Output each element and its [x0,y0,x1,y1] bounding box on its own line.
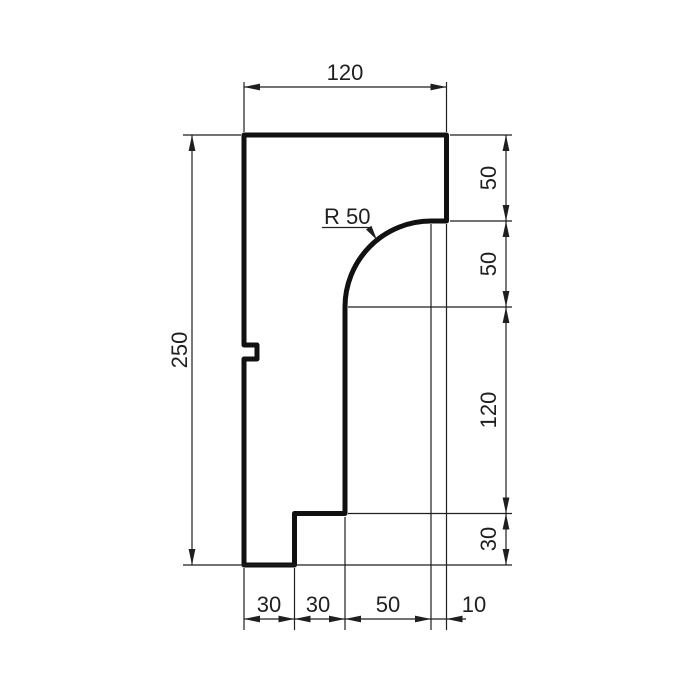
dim-label-bottom-2: 30 [306,592,330,617]
dimension-arrowhead [503,307,510,323]
dimension-lines [192,87,506,619]
dimension-arrowhead [503,514,510,530]
dimension-arrowhead [503,549,510,565]
dim-label-right-1: 50 [476,166,501,190]
dimension-arrowhead [503,205,510,221]
dimension-arrowhead [244,84,260,91]
dimension-arrowhead [415,616,431,623]
dimension-arrowhead [503,291,510,307]
profile-outline [244,135,447,565]
dimension-arrowheads [189,84,510,623]
dimension-arrowhead [329,616,345,623]
dimension-arrowhead [189,549,196,565]
dimension-arrowhead [345,616,361,623]
molding-profile-drawing: 120 250 50 50 120 30 30 30 50 10 R 50 [0,0,686,686]
dimension-arrowhead [447,616,463,623]
dim-label-right-4: 30 [476,527,501,551]
technical-drawing-canvas: 120 250 50 50 120 30 30 30 50 10 R 50 [0,0,686,686]
dim-label-bottom-1: 30 [257,592,281,617]
dim-label-bottom-4: 10 [462,592,486,617]
dimension-arrowhead [431,84,447,91]
dim-label-bottom-3: 50 [376,592,400,617]
dimension-arrowhead [189,135,196,151]
dim-label-right-3: 120 [476,392,501,429]
dimension-arrowhead [503,498,510,514]
dimension-arrowhead [503,135,510,151]
dim-label-top: 120 [327,60,364,85]
dim-label-left: 250 [167,332,192,369]
dim-label-right-2: 50 [476,252,501,276]
radius-label: R 50 [324,204,370,229]
dimension-arrowhead [503,221,510,237]
